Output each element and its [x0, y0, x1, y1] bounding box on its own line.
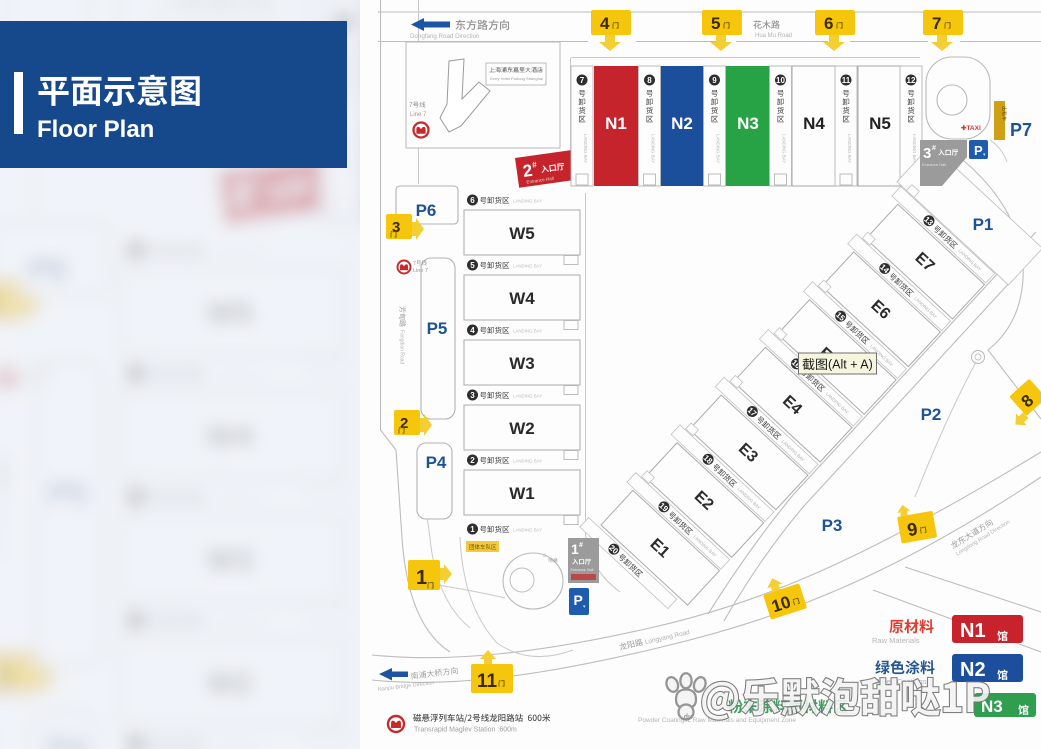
svg-text:Floor Plan: Floor Plan	[37, 116, 154, 143]
svg-text:du: du	[684, 714, 693, 721]
